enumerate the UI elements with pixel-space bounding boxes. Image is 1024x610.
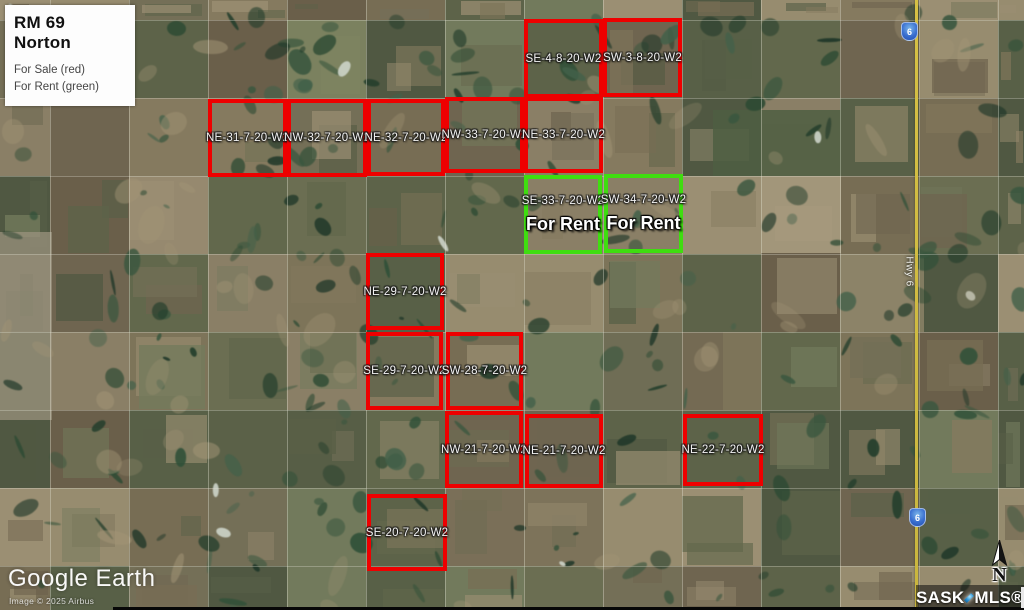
parcel-nw-21-7-20-w2: NW-21-7-20-W2	[445, 411, 523, 488]
parcel-sw-34-7-20-w2: SW-34-7-20-W2For Rent	[604, 174, 683, 253]
parcel-for-rent-note: For Rent	[607, 213, 681, 234]
parcel-label: NE-22-7-20-W2	[681, 444, 764, 456]
parcel-nw-32-7-20-w2: NW-32-7-20-W2	[287, 99, 367, 177]
parcel-sw-28-7-20-w2: SW-28-7-20-W2	[446, 332, 523, 410]
parcel-label: NE-21-7-20-W2	[522, 445, 605, 457]
parcel-label: NE-29-7-20-W2	[363, 286, 446, 298]
legend-for-sale-label: For Sale (red)	[14, 62, 126, 79]
parcel-label: SE-20-7-20-W2	[366, 527, 449, 539]
parcel-label: NE-31-7-20-W2	[206, 132, 289, 144]
parcel-ne-31-7-20-w2: NE-31-7-20-W2	[208, 99, 287, 177]
parcel-for-rent-note: For Rent	[526, 214, 600, 235]
parcel-sw-3-8-20-w2: SW-3-8-20-W2	[603, 18, 682, 97]
parcel-ne-21-7-20-w2: NE-21-7-20-W2	[525, 414, 603, 488]
parcel-label: SW-34-7-20-W2	[601, 194, 686, 206]
parcel-ne-29-7-20-w2: NE-29-7-20-W2	[366, 253, 444, 330]
parcel-nw-33-7-20-w2: NW-33-7-20-W2	[445, 97, 524, 173]
parcel-label: SW-28-7-20-W2	[442, 365, 527, 377]
parcel-ne-22-7-20-w2: NE-22-7-20-W2	[683, 414, 763, 486]
parcel-se-29-7-20-w2: SE-29-7-20-W2	[366, 332, 443, 410]
legend-box: RM 69 Norton For Sale (red) For Rent (gr…	[5, 5, 135, 106]
legend-title: RM 69 Norton	[14, 13, 126, 53]
parcel-label: NW-32-7-20-W2	[284, 132, 370, 144]
parcel-label: NW-33-7-20-W2	[441, 129, 527, 141]
parcel-ne-33-7-20-w2: NE-33-7-20-W2	[524, 97, 603, 173]
legend-for-rent-label: For Rent (green)	[14, 79, 126, 96]
parcel-label: SE-29-7-20-W2	[363, 365, 446, 377]
parcels-layer: SE-4-8-20-W2SW-3-8-20-W2NE-31-7-20-W2NW-…	[0, 0, 1024, 610]
parcel-label: NW-21-7-20-W2	[441, 444, 527, 456]
map-canvas: 6 6 Hwy 6 SE-4-8-20-W2SW-3-8-20-W2NE-31-…	[0, 0, 1024, 610]
parcel-se-20-7-20-w2: SE-20-7-20-W2	[367, 494, 447, 571]
parcel-label: NE-32-7-20-W2	[364, 132, 447, 144]
parcel-label: SW-3-8-20-W2	[603, 52, 682, 64]
parcel-se-4-8-20-w2: SE-4-8-20-W2	[524, 19, 603, 98]
parcel-ne-32-7-20-w2: NE-32-7-20-W2	[367, 99, 445, 176]
parcel-label: NE-33-7-20-W2	[522, 129, 605, 141]
parcel-se-33-7-20-w2: SE-33-7-20-W2For Rent	[524, 175, 602, 254]
parcel-label: SE-33-7-20-W2	[522, 195, 605, 207]
parcel-label: SE-4-8-20-W2	[526, 53, 602, 65]
